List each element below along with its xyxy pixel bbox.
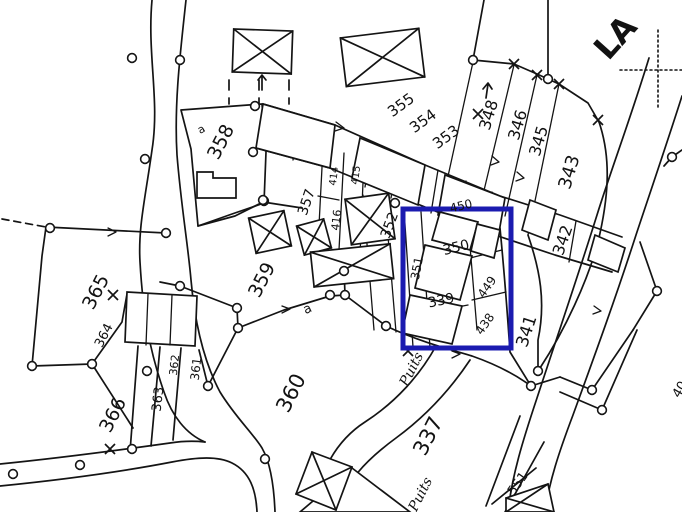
parcel-label-415: 415 bbox=[350, 165, 363, 185]
parcel-label-363: 363 bbox=[150, 386, 168, 412]
parcel-label-449: 449 bbox=[475, 274, 500, 301]
parcel-label-348: 348 bbox=[475, 97, 502, 132]
parcel-label-353: 353 bbox=[429, 121, 463, 152]
well-label-1: Puits bbox=[396, 350, 427, 390]
parcel-label-359: 359 bbox=[244, 259, 280, 301]
parcel-label-345: 345 bbox=[525, 123, 552, 158]
parcel-label-362: 362 bbox=[167, 354, 182, 376]
parcel-label-355: 355 bbox=[384, 89, 418, 120]
parcel-label-342: 342 bbox=[549, 223, 577, 258]
parcel-label-416: 416 bbox=[329, 209, 344, 231]
parcel-label-337: 337 bbox=[408, 413, 448, 460]
parcel-label-365: 365 bbox=[78, 271, 114, 313]
parcel-label-438: 438 bbox=[473, 311, 498, 338]
cadastral-map-drawing: LA 355 354 353 348 346 345 343 342 341 3… bbox=[0, 0, 682, 512]
parcel-label-343: 343 bbox=[554, 153, 584, 192]
subdivision-a-label-2: a bbox=[301, 301, 315, 318]
parcel-label-346: 346 bbox=[504, 107, 531, 142]
subdivision-a-label-1: a bbox=[195, 122, 207, 137]
parcel-label-361: 361 bbox=[188, 357, 205, 381]
parcel-label-360: 360 bbox=[271, 370, 311, 417]
cadastral-map-viewport[interactable]: LA 355 354 353 348 346 345 343 342 341 3… bbox=[0, 0, 682, 512]
parcel-label-341: 341 bbox=[512, 313, 541, 350]
parcel-label-357: 357 bbox=[295, 187, 319, 217]
parcel-label-358: 358 bbox=[203, 121, 239, 163]
parcel-label-414: 414 bbox=[328, 166, 341, 186]
well-label-2: Puits bbox=[405, 475, 436, 512]
parcel-label-354: 354 bbox=[406, 105, 440, 136]
parcel-label-edge-partial: 40 bbox=[670, 379, 682, 401]
place-name-label: LA bbox=[586, 8, 645, 67]
hatched-buildings bbox=[125, 104, 625, 512]
